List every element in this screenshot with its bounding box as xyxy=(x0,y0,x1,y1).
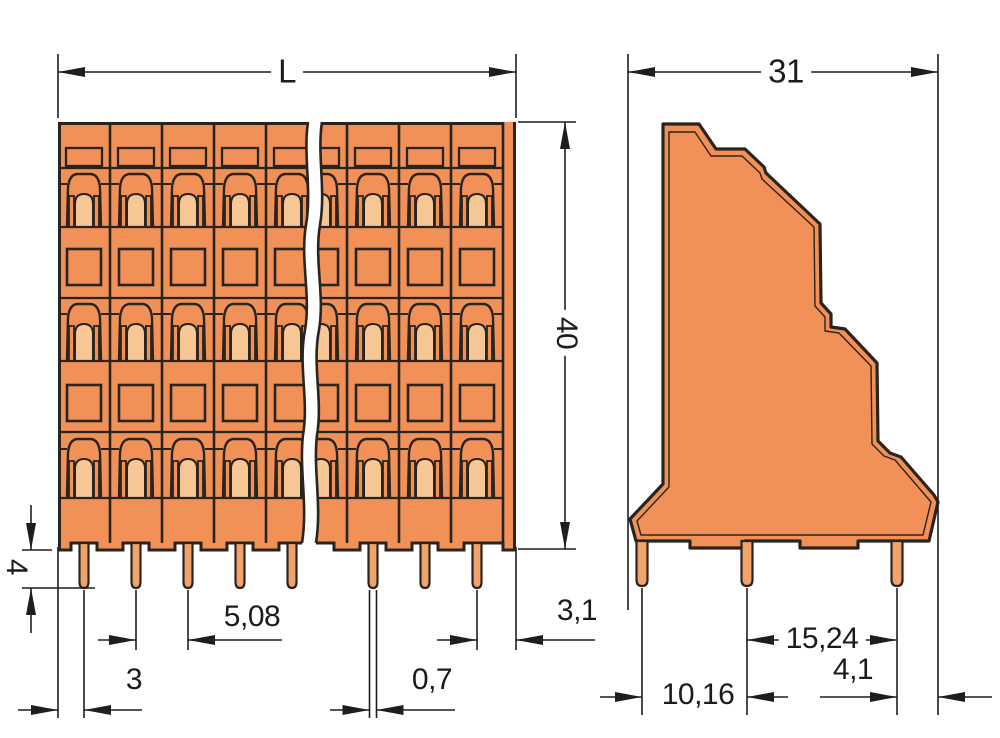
dim-last-pin-to-edge: 3,1 xyxy=(557,596,597,626)
dim-edge-to-first-pin: 3 xyxy=(126,665,142,695)
dim-pin-length: 4 xyxy=(1,559,31,575)
front-view xyxy=(58,122,516,588)
dim-pin-row-spacing-front: 10,16 xyxy=(655,680,742,710)
dim-pin-row-spacing-back: 15,24 xyxy=(779,624,866,654)
dim-pin-width: 0,7 xyxy=(412,665,452,695)
dim-overall-depth: 31 xyxy=(761,55,811,88)
drawing-canvas: L 40 4 5,08 3 0,7 3,1 31 15,24 4,1 10,16 xyxy=(0,0,1000,738)
side-view xyxy=(630,124,938,586)
dim-pin-pitch: 5,08 xyxy=(224,602,280,632)
dim-height: 40 xyxy=(551,310,581,356)
dim-pin-to-back-edge: 4,1 xyxy=(833,655,873,685)
dim-overall-length: L xyxy=(271,55,303,88)
